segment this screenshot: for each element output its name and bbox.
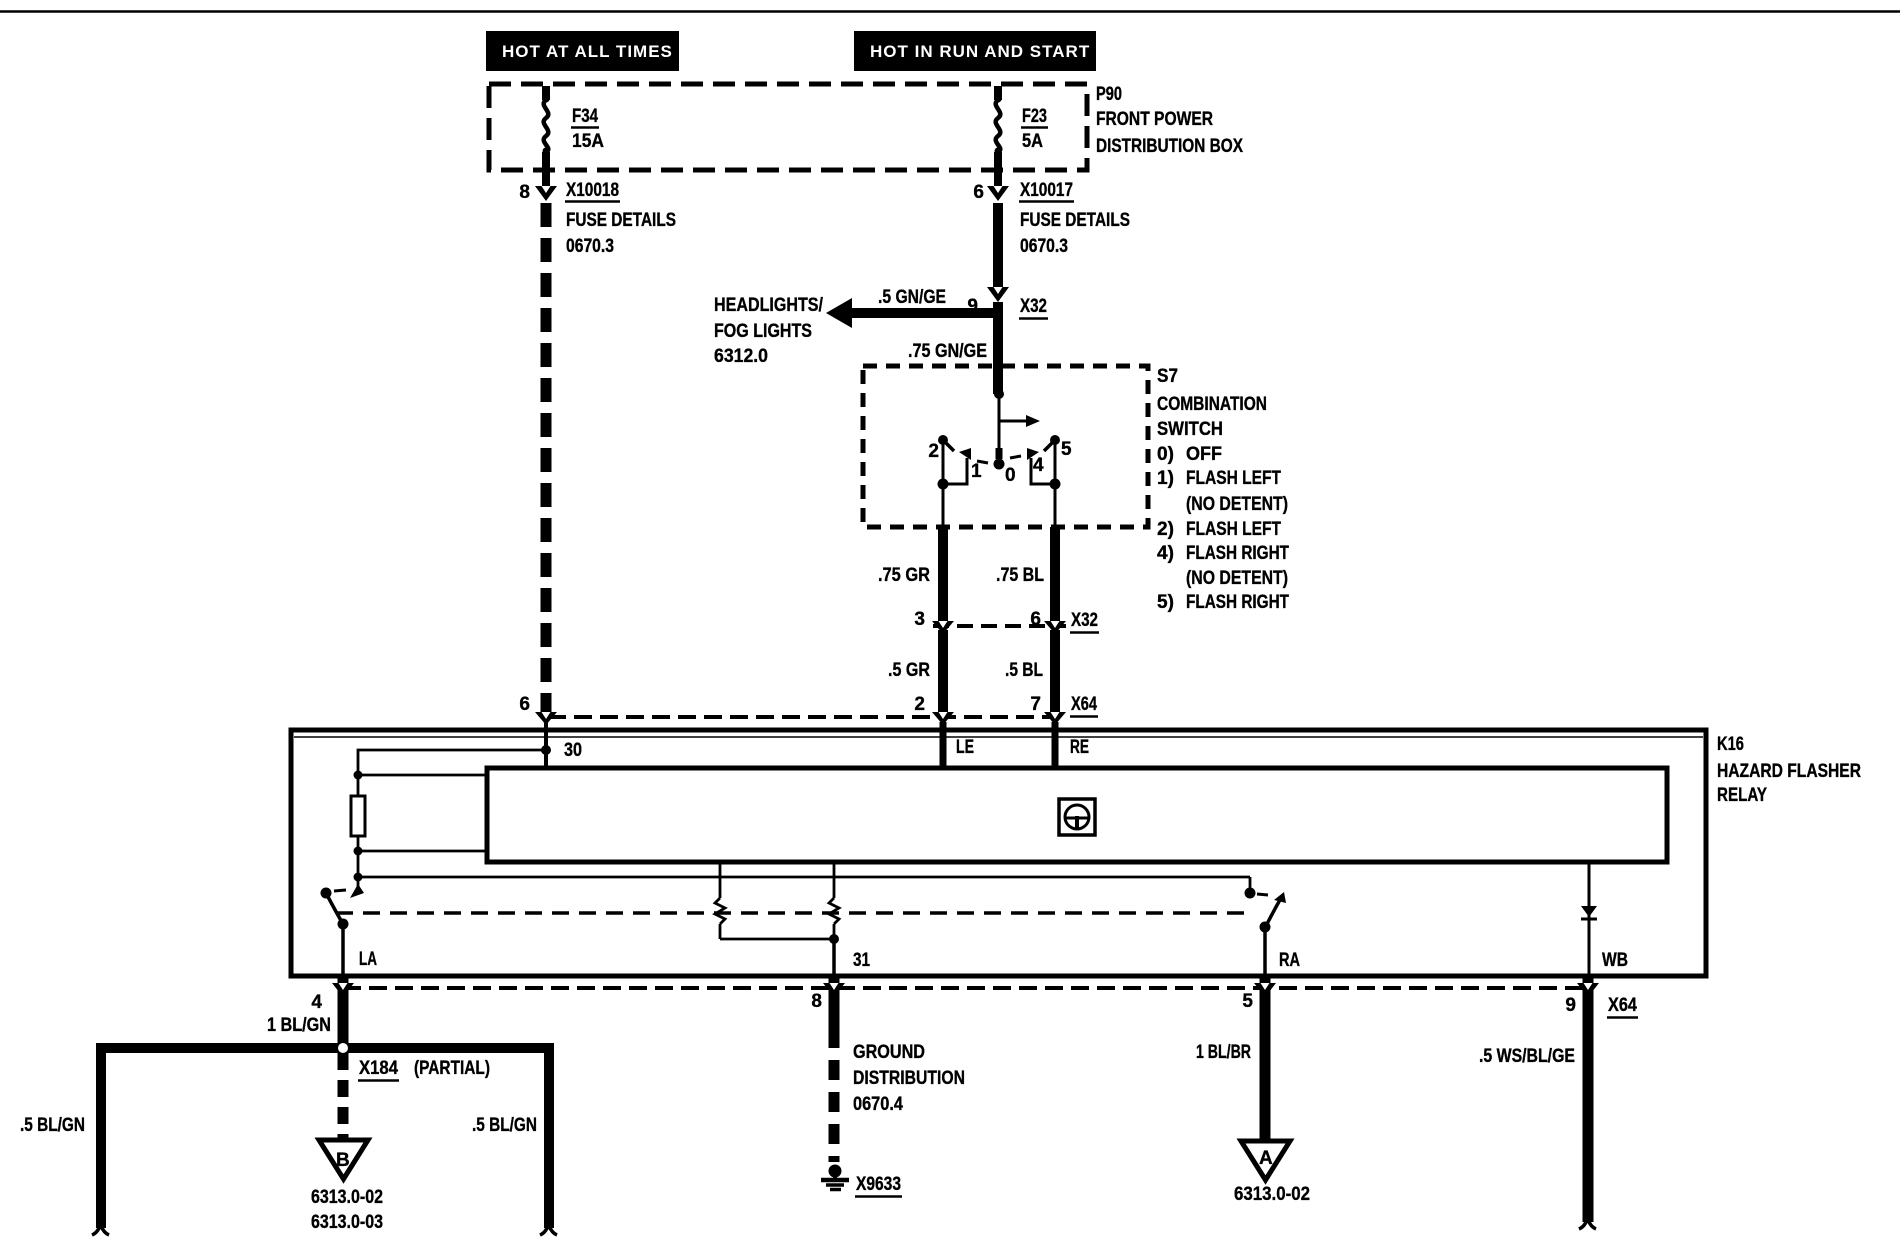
svg-text:X64: X64 <box>1608 995 1637 1016</box>
svg-text:6312.0: 6312.0 <box>714 346 768 367</box>
svg-text:HAZARD FLASHER: HAZARD FLASHER <box>1717 761 1861 782</box>
svg-text:5): 5) <box>1157 592 1174 613</box>
svg-text:.75 GR: .75 GR <box>878 565 930 586</box>
svg-text:FLASH LEFT: FLASH LEFT <box>1186 519 1281 540</box>
svg-text:0: 0 <box>1005 465 1016 486</box>
svg-text:OFF: OFF <box>1186 444 1222 465</box>
svg-text:2): 2) <box>1157 519 1174 540</box>
svg-text:X184: X184 <box>359 1058 398 1079</box>
svg-text:FRONT POWER: FRONT POWER <box>1096 109 1213 130</box>
svg-text:.75 GN/GE: .75 GN/GE <box>908 341 987 362</box>
svg-text:X64: X64 <box>1071 694 1097 715</box>
svg-text:B: B <box>336 1150 350 1171</box>
svg-text:0670.4: 0670.4 <box>853 1094 903 1115</box>
svg-text:HOT AT ALL TIMES: HOT AT ALL TIMES <box>502 42 673 61</box>
svg-text:(NO DETENT): (NO DETENT) <box>1186 494 1288 515</box>
svg-text:X32: X32 <box>1020 296 1047 317</box>
svg-text:.5 BL/GN: .5 BL/GN <box>472 1115 537 1136</box>
svg-text:6: 6 <box>973 182 984 203</box>
svg-text:5: 5 <box>1061 439 1072 460</box>
svg-text:1 BL/BR: 1 BL/BR <box>1196 1042 1251 1063</box>
svg-text:DISTRIBUTION BOX: DISTRIBUTION BOX <box>1096 136 1243 157</box>
svg-text:.5 BL: .5 BL <box>1005 660 1043 681</box>
svg-text:6: 6 <box>519 694 530 715</box>
svg-text:0670.3: 0670.3 <box>1020 236 1068 257</box>
svg-text:0): 0) <box>1157 444 1174 465</box>
svg-text:5A: 5A <box>1022 131 1043 152</box>
svg-text:4: 4 <box>1033 455 1044 476</box>
svg-text:8: 8 <box>811 991 822 1012</box>
svg-text:(NO DETENT): (NO DETENT) <box>1186 568 1288 589</box>
svg-text:6313.0-02: 6313.0-02 <box>1234 1184 1310 1205</box>
svg-text:4: 4 <box>311 992 322 1013</box>
svg-text:FLASH LEFT: FLASH LEFT <box>1186 468 1281 489</box>
svg-text:K16: K16 <box>1717 734 1744 755</box>
svg-text:X10018: X10018 <box>566 180 619 201</box>
svg-text:LE: LE <box>956 737 974 758</box>
svg-text:GROUND: GROUND <box>853 1042 925 1063</box>
svg-text:15A: 15A <box>572 131 604 152</box>
svg-text:8: 8 <box>519 182 530 203</box>
svg-text:HOT IN RUN AND START: HOT IN RUN AND START <box>870 42 1090 61</box>
svg-text:6313.0-02: 6313.0-02 <box>311 1187 383 1208</box>
svg-text:4): 4) <box>1157 543 1174 564</box>
svg-text:1: 1 <box>971 461 982 482</box>
svg-text:FOG LIGHTS: FOG LIGHTS <box>714 321 812 342</box>
svg-text:HEADLIGHTS/: HEADLIGHTS/ <box>714 295 824 316</box>
svg-text:FUSE DETAILS: FUSE DETAILS <box>1020 210 1130 231</box>
svg-text:1): 1) <box>1157 468 1174 489</box>
svg-text:P90: P90 <box>1096 84 1122 105</box>
svg-text:COMBINATION: COMBINATION <box>1157 394 1267 415</box>
svg-text:.75 BL: .75 BL <box>996 565 1044 586</box>
svg-text:.5 BL/GN: .5 BL/GN <box>20 1115 85 1136</box>
svg-text:6313.0-03: 6313.0-03 <box>311 1212 383 1233</box>
svg-text:9: 9 <box>967 296 978 317</box>
svg-text:S7: S7 <box>1157 366 1178 387</box>
svg-text:6: 6 <box>1030 609 1041 630</box>
svg-text:1 BL/GN: 1 BL/GN <box>267 1015 331 1036</box>
svg-text:FLASH RIGHT: FLASH RIGHT <box>1186 543 1289 564</box>
svg-text:RA: RA <box>1279 950 1300 971</box>
svg-text:F23: F23 <box>1022 106 1047 127</box>
svg-text:0670.3: 0670.3 <box>566 236 614 257</box>
svg-text:2: 2 <box>928 441 939 462</box>
svg-text:5: 5 <box>1242 991 1253 1012</box>
svg-text:(PARTIAL): (PARTIAL) <box>414 1058 490 1079</box>
svg-text:31: 31 <box>853 950 870 971</box>
svg-text:DISTRIBUTION: DISTRIBUTION <box>853 1068 965 1089</box>
svg-text:RELAY: RELAY <box>1717 785 1767 806</box>
svg-text:F34: F34 <box>572 106 598 127</box>
svg-text:LA: LA <box>359 949 377 970</box>
svg-text:30: 30 <box>564 740 582 761</box>
svg-text:X32: X32 <box>1071 610 1098 631</box>
svg-text:RE: RE <box>1070 737 1089 758</box>
svg-text:9: 9 <box>1565 995 1576 1016</box>
svg-text:X9633: X9633 <box>856 1174 901 1195</box>
svg-text:2: 2 <box>914 694 925 715</box>
svg-text:FLASH RIGHT: FLASH RIGHT <box>1186 592 1289 613</box>
svg-text:X10017: X10017 <box>1020 180 1073 201</box>
svg-text:3: 3 <box>914 609 925 630</box>
svg-text:FUSE DETAILS: FUSE DETAILS <box>566 210 676 231</box>
svg-text:.5 WS/BL/GE: .5 WS/BL/GE <box>1479 1046 1575 1067</box>
svg-text:A: A <box>1259 1148 1273 1169</box>
svg-text:.5 GR: .5 GR <box>888 660 930 681</box>
svg-text:7: 7 <box>1030 694 1041 715</box>
svg-text:SWITCH: SWITCH <box>1157 419 1223 440</box>
svg-text:.5 GN/GE: .5 GN/GE <box>878 287 946 308</box>
svg-text:WB: WB <box>1602 950 1628 971</box>
